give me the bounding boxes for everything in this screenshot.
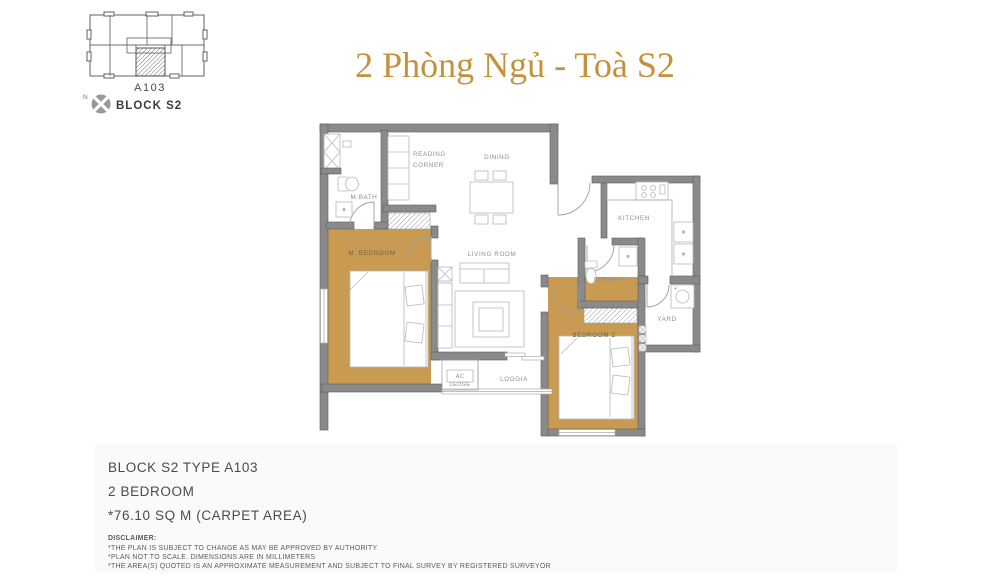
label-loggia: LOGGIA xyxy=(500,376,528,383)
info-panel: BLOCK S2 TYPE A103 2 BEDROOM *76.10 SQ M… xyxy=(95,444,898,572)
label-reading-corner: READING xyxy=(413,151,446,158)
tv-console-icon xyxy=(438,267,452,348)
label-yard: YARD xyxy=(657,316,676,323)
disclaimer-line: *THE AREA(S) QUOTED IS AN APPROXIMATE ME… xyxy=(108,563,551,570)
disclaimer-title: DISCLAIMER: xyxy=(108,535,156,542)
disclaimer-line: *PLAN NOT TO SCALE. DIMENSIONS ARE IN MI… xyxy=(108,554,315,561)
disclaimer-line: *THE PLAN IS SUBJECT TO CHANGE AS MAY BE… xyxy=(108,545,377,552)
shaft-icon xyxy=(321,134,351,174)
info-block-type: BLOCK S2 TYPE A103 xyxy=(108,460,258,475)
coffee-table-icon xyxy=(455,291,524,347)
master-bed-icon xyxy=(350,271,428,367)
compass-icon: N xyxy=(83,94,111,114)
floor-plan: READING CORNER DINING KITCHEN M.BATH M. … xyxy=(320,124,700,436)
label-kitchen: KITCHEN xyxy=(618,215,650,222)
toilet-icon xyxy=(338,177,359,191)
label-m-bedroom: M. BEDROOM xyxy=(348,250,395,257)
ac-condenser-icons xyxy=(639,326,646,351)
label-m-bath: M.BATH xyxy=(351,194,378,201)
reading-shelf-icon xyxy=(388,136,409,200)
label-dining: DINING xyxy=(484,154,510,161)
washing-machine-icon xyxy=(671,285,694,308)
label-bedroom-2: BEDROOM 2 xyxy=(572,332,615,339)
combath-sink-icon xyxy=(619,247,637,266)
stove-icon xyxy=(636,182,668,200)
info-bedrooms: 2 BEDROOM xyxy=(108,484,194,499)
sink-icon xyxy=(336,202,352,217)
label-reading-corner2: CORNER xyxy=(413,162,444,169)
sofa-icon xyxy=(460,263,509,283)
bedroom2-bed-icon xyxy=(559,336,634,419)
dining-table-icon xyxy=(470,171,513,224)
label-ac-ledge2: LEDGE xyxy=(450,382,471,388)
label-living-room: LIVING ROOM xyxy=(468,251,517,258)
label-com-bath: COM.BATH xyxy=(594,277,626,283)
north-label: N xyxy=(83,94,88,101)
label-ac-ledge: AC xyxy=(456,374,465,380)
key-plan-unit-label: A103 xyxy=(134,82,166,94)
key-plan-highlighted-unit xyxy=(136,48,165,76)
block-label: BLOCK S2 xyxy=(116,100,182,112)
key-plan: A103 xyxy=(87,12,207,94)
info-area: *76.10 SQ M (CARPET AREA) xyxy=(108,508,307,523)
